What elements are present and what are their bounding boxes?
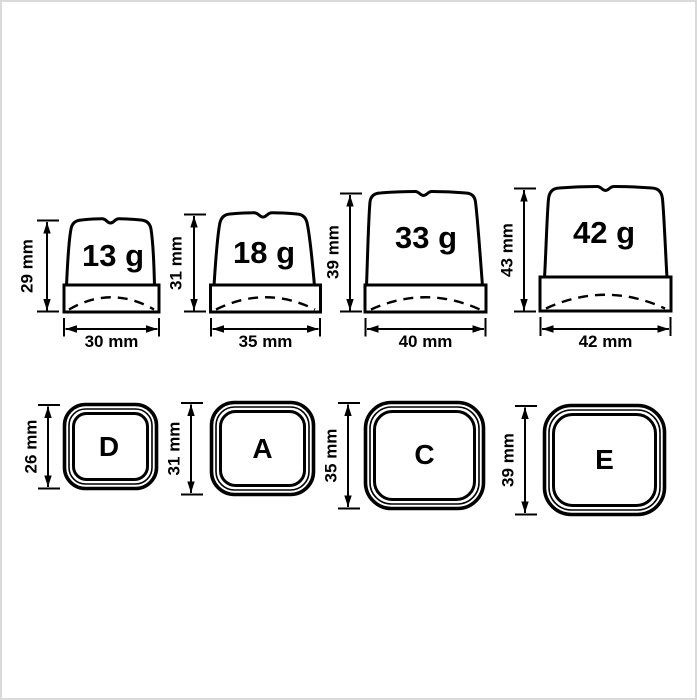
height-dimension: 31 mm	[165, 403, 204, 495]
height-dimension: 39 mm	[499, 406, 538, 515]
height-dim-label: 43 mm	[498, 223, 517, 277]
height-dimension: 29 mm	[18, 221, 60, 312]
width-dimension: 40 mm	[366, 318, 486, 351]
cube-letter-label: E	[595, 444, 614, 475]
cube-side-33g: 33 g 39 mm 40 mm	[324, 192, 487, 352]
ice-cube-size-diagram: 13 g 29 mm 30 mm 18 g	[2, 2, 697, 700]
height-dim-label: 31 mm	[167, 236, 186, 290]
top-view-cubes: D 26 mm A 31 mm	[22, 403, 665, 515]
height-dim-label: 39 mm	[499, 433, 518, 487]
cube-base	[211, 285, 321, 312]
height-dim-label: 26 mm	[22, 420, 41, 474]
height-dimension: 35 mm	[322, 403, 361, 509]
top-view-e: E 39 mm	[499, 406, 665, 515]
cube-side-18g: 18 g 31 mm 35 mm	[167, 213, 321, 351]
width-dimension: 42 mm	[541, 317, 671, 351]
cube-base	[64, 285, 159, 312]
top-view-c: C 35 mm	[322, 403, 484, 509]
top-view-d: D 26 mm	[22, 405, 157, 489]
cube-letter-label: D	[99, 431, 119, 462]
height-dim-label: 31 mm	[165, 422, 184, 476]
height-dimension: 31 mm	[167, 215, 207, 312]
height-dimension: 43 mm	[498, 189, 537, 312]
width-dim-label: 40 mm	[399, 332, 453, 351]
height-dimension: 39 mm	[324, 194, 363, 312]
cube-side-13g: 13 g 29 mm 30 mm	[18, 219, 160, 351]
height-dim-label: 39 mm	[324, 225, 343, 279]
width-dim-label: 30 mm	[85, 332, 139, 351]
width-dim-label: 35 mm	[239, 332, 293, 351]
cube-letter-label: A	[252, 433, 272, 464]
diagram-canvas: 13 g 29 mm 30 mm 18 g	[0, 0, 697, 700]
width-dim-label: 42 mm	[579, 332, 633, 351]
cube-letter-label: C	[414, 439, 434, 470]
width-dimension: 35 mm	[211, 318, 320, 351]
height-dimension: 26 mm	[22, 405, 61, 489]
width-dimension: 30 mm	[64, 318, 159, 351]
weight-label: 33 g	[395, 220, 457, 255]
cube-side-42g: 42 g 43 mm 42 mm	[498, 187, 672, 352]
side-view-cubes: 13 g 29 mm 30 mm 18 g	[18, 187, 672, 352]
height-dim-label: 35 mm	[322, 429, 341, 483]
weight-label: 42 g	[573, 215, 635, 250]
height-dim-label: 29 mm	[18, 239, 37, 293]
top-view-a: A 31 mm	[165, 403, 314, 495]
cube-base	[540, 277, 671, 311]
weight-label: 18 g	[233, 235, 295, 270]
weight-label: 13 g	[82, 238, 144, 273]
cube-base	[365, 285, 486, 312]
